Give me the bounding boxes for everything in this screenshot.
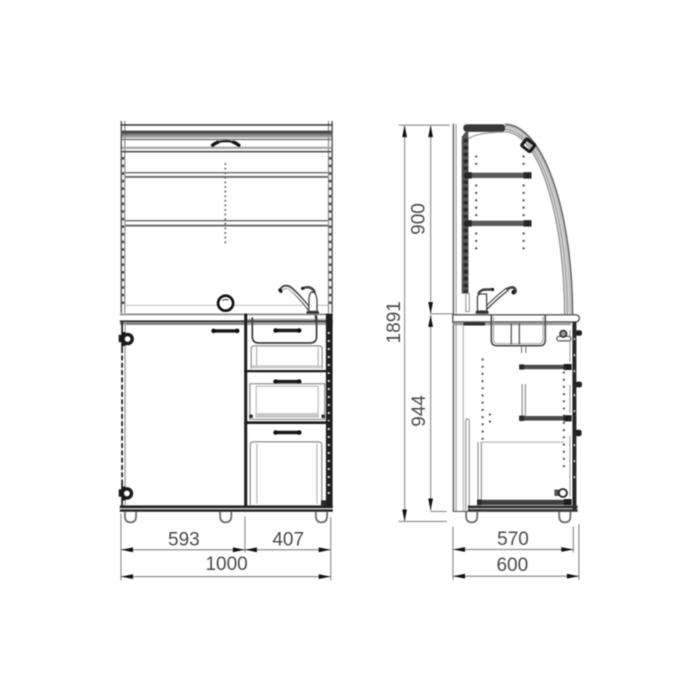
svg-text:1891: 1891 (384, 301, 405, 343)
svg-text:1000: 1000 (205, 554, 247, 575)
svg-text:900: 900 (408, 203, 429, 235)
svg-text:600: 600 (496, 555, 528, 576)
svg-text:944: 944 (409, 395, 430, 427)
svg-text:407: 407 (272, 529, 304, 550)
svg-text:593: 593 (168, 529, 200, 550)
svg-text:570: 570 (497, 529, 529, 550)
